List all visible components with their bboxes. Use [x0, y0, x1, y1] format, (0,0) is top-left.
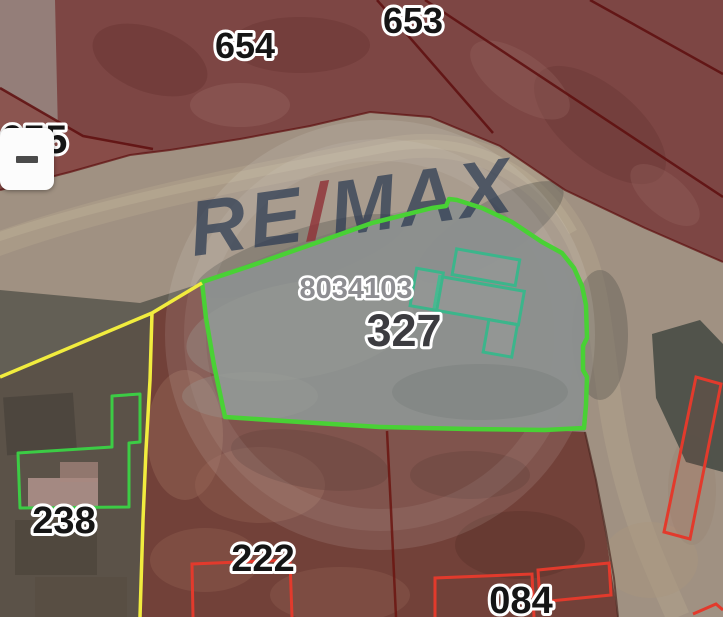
selected-parcel-number-label: 327: [366, 305, 441, 356]
watermark-re: RE: [184, 170, 311, 273]
parcel-label-654: 654: [215, 25, 275, 66]
selected-parcel-id-label: 8034103: [300, 273, 413, 305]
parcel-label-238: 238: [32, 500, 95, 542]
p238-roof-pink-2: [60, 462, 98, 482]
red-mottle-4: [190, 83, 290, 127]
p238-texture-3: [35, 577, 127, 617]
building-outline-foot: [483, 320, 517, 358]
parcel-label-084: 084: [489, 580, 552, 617]
parcel-label-653: 653: [383, 0, 443, 41]
p238-texture-1: [3, 393, 77, 456]
parcel-label-222: 222: [231, 538, 294, 580]
minus-icon: [16, 156, 38, 163]
map-canvas[interactable]: RE/MAX 655 654 653 8034103 327 238 22: [0, 0, 723, 617]
parcel-texture-3: [182, 372, 318, 420]
cadastral-map-layer: RE/MAX 655 654 653 8034103 327 238 22: [0, 0, 723, 617]
parcel-texture-2: [392, 364, 568, 420]
zoom-out-button[interactable]: [0, 128, 54, 190]
